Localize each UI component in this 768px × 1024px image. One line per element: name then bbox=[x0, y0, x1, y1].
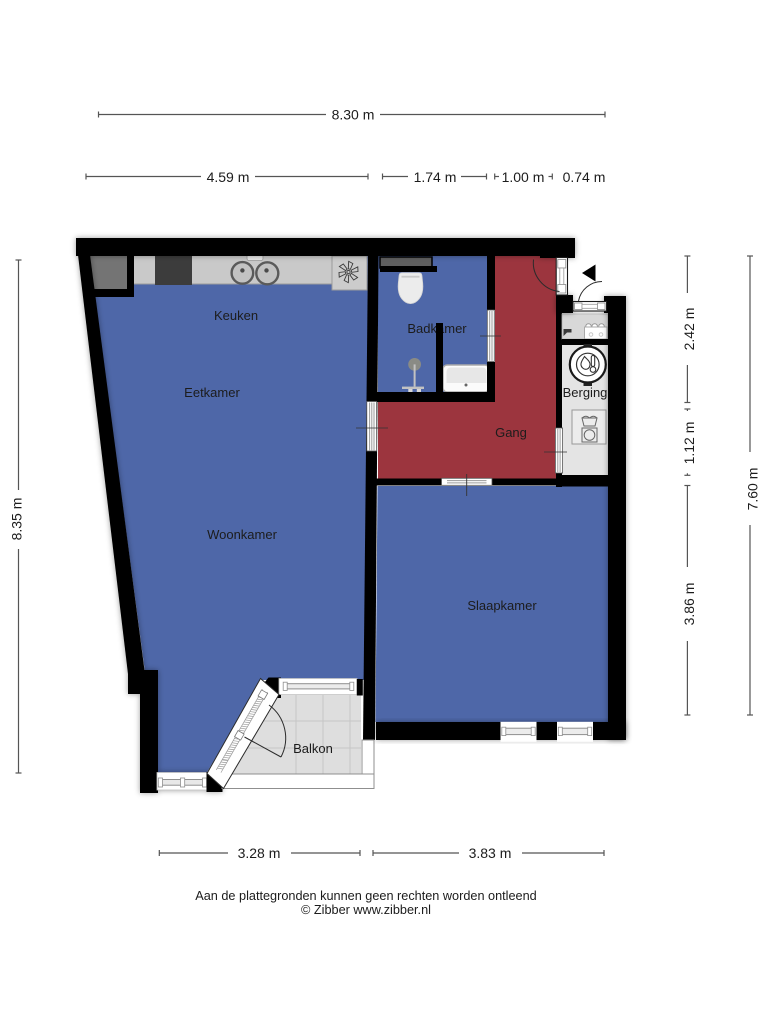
svg-text:4.59 m: 4.59 m bbox=[207, 169, 250, 185]
svg-text:1.00 m: 1.00 m bbox=[502, 169, 545, 185]
svg-text:Gang: Gang bbox=[495, 425, 527, 440]
svg-text:Aan de plattegronden kunnen ge: Aan de plattegronden kunnen geen rechten… bbox=[195, 889, 536, 903]
svg-text:Berging: Berging bbox=[563, 385, 608, 400]
svg-text:7.60 m: 7.60 m bbox=[745, 468, 761, 511]
svg-text:Keuken: Keuken bbox=[214, 308, 258, 323]
svg-text:1.12 m: 1.12 m bbox=[681, 422, 697, 465]
svg-text:3.86 m: 3.86 m bbox=[681, 583, 697, 626]
svg-text:3.28 m: 3.28 m bbox=[238, 845, 281, 861]
svg-text:8.35 m: 8.35 m bbox=[9, 498, 25, 541]
svg-text:Balkon: Balkon bbox=[293, 741, 333, 756]
svg-text:Woonkamer: Woonkamer bbox=[207, 527, 278, 542]
svg-text:8.30 m: 8.30 m bbox=[332, 107, 375, 123]
svg-text:Eetkamer: Eetkamer bbox=[184, 385, 240, 400]
svg-text:2.42 m: 2.42 m bbox=[681, 308, 697, 351]
svg-text:Slaapkamer: Slaapkamer bbox=[467, 598, 537, 613]
svg-text:3.83 m: 3.83 m bbox=[469, 845, 512, 861]
svg-text:0.74 m: 0.74 m bbox=[563, 169, 606, 185]
svg-text:1.74 m: 1.74 m bbox=[414, 169, 457, 185]
svg-text:© Zibber www.zibber.nl: © Zibber www.zibber.nl bbox=[301, 903, 431, 917]
